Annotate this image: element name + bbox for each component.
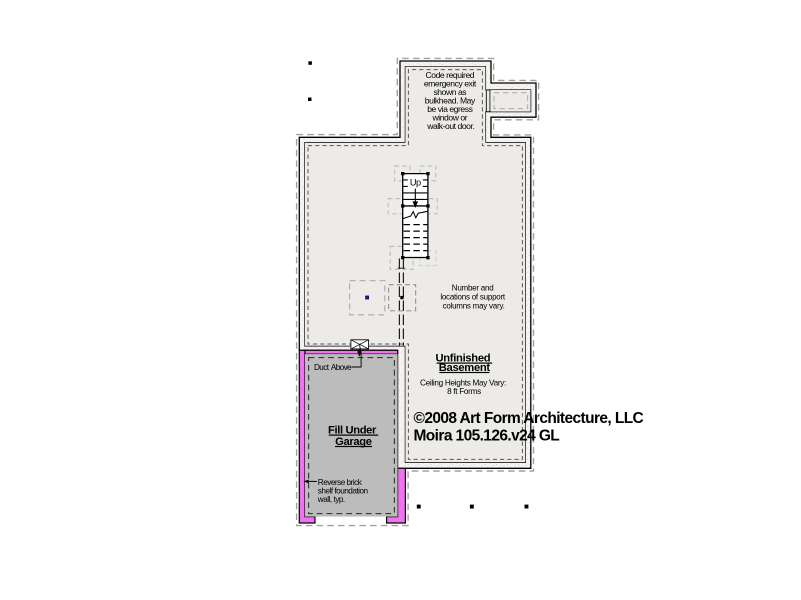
svg-text:Up: Up bbox=[410, 178, 421, 188]
svg-text:Fill Under Garage: Fill Under Garage bbox=[328, 424, 379, 447]
svg-text:Code required emergency exit: Code required emergency exit shown as bu… bbox=[424, 70, 478, 131]
svg-text:Duct Above: Duct Above bbox=[314, 363, 352, 372]
